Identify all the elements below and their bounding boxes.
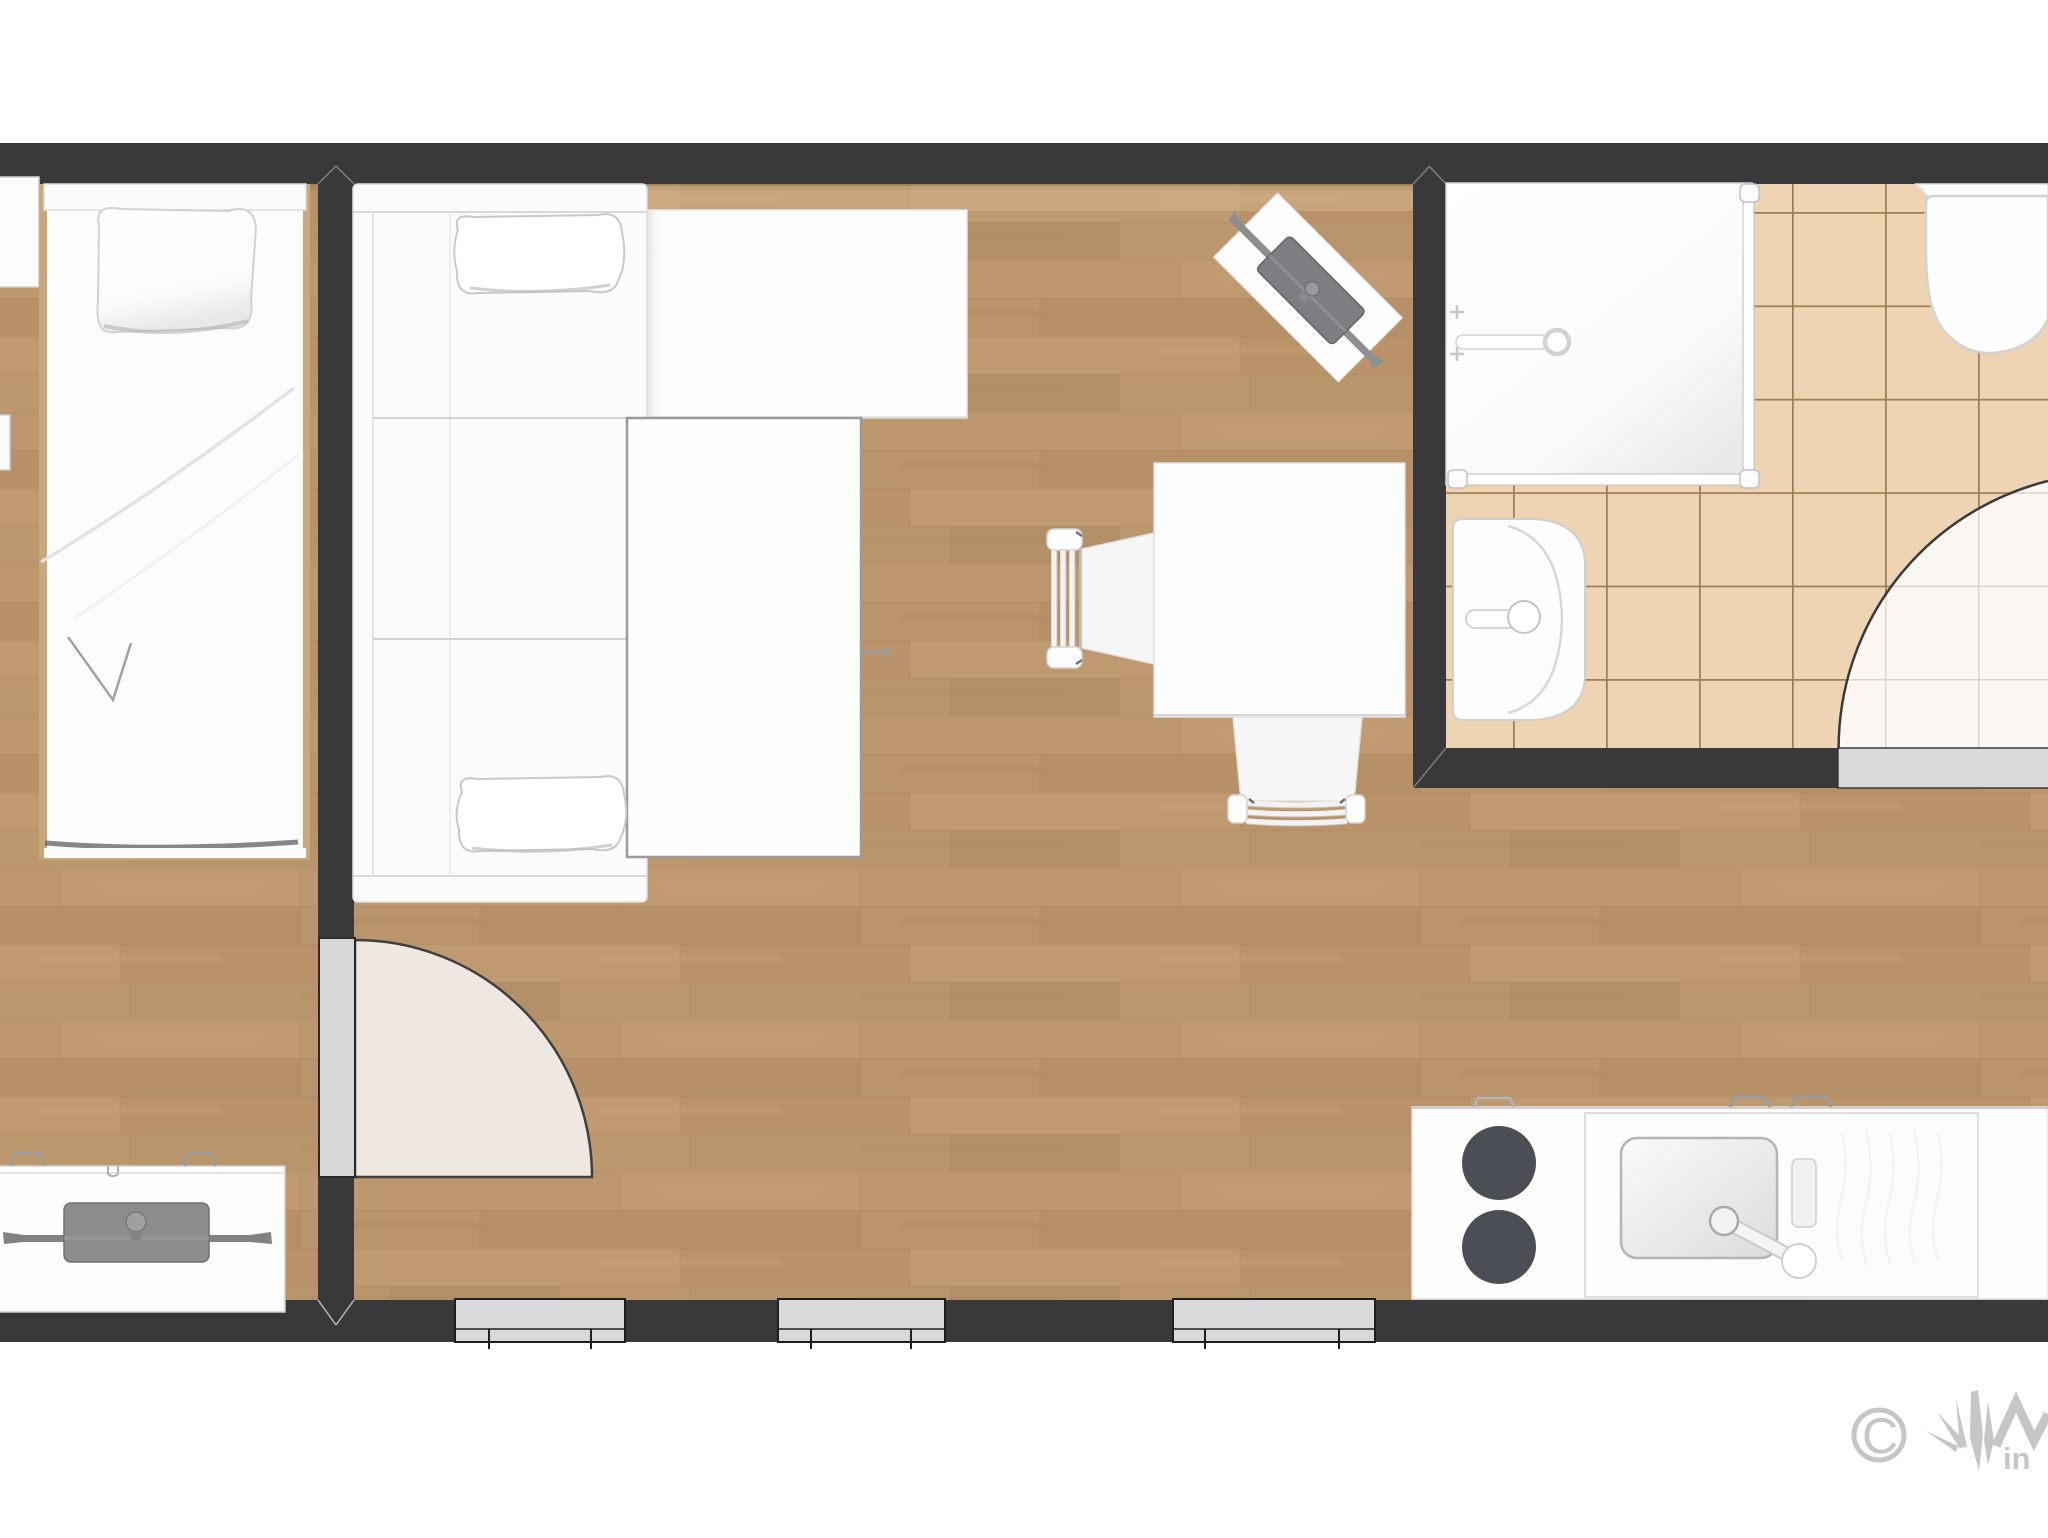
svg-text:in: in: [2003, 1441, 2031, 1476]
svg-text:C: C: [1862, 1408, 1898, 1464]
